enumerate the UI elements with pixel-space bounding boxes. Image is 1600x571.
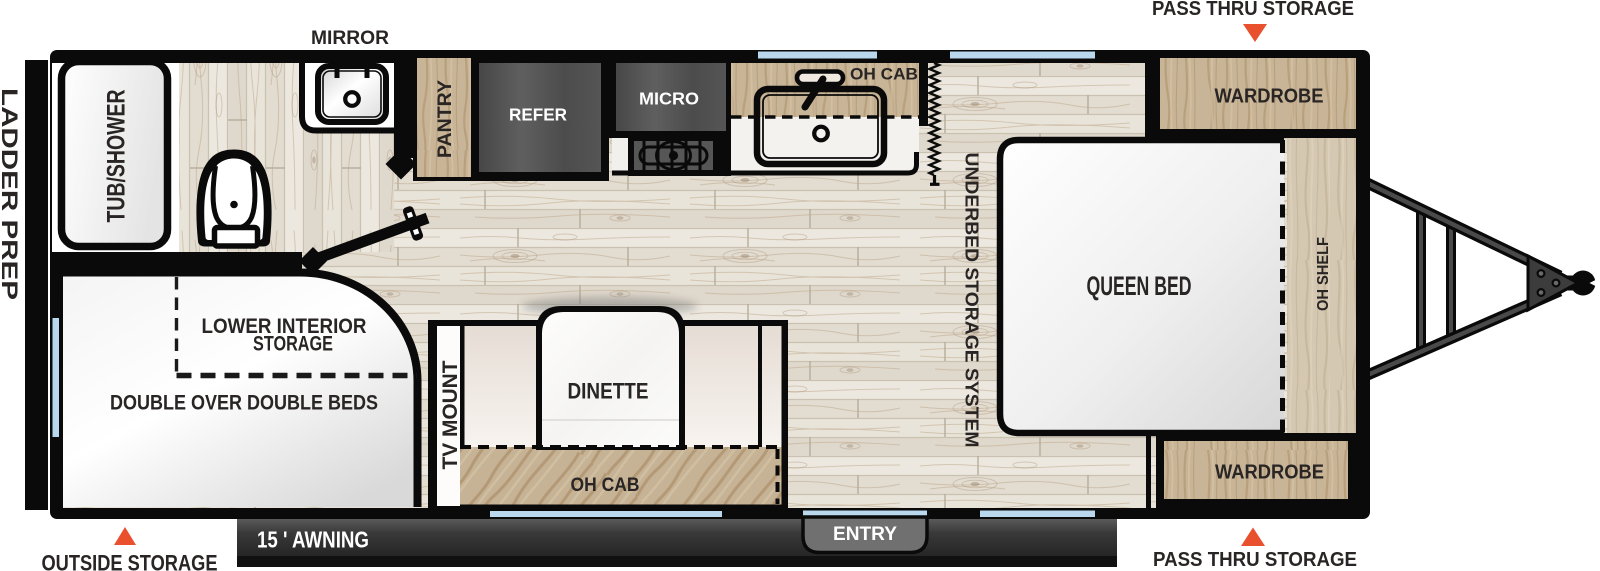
svg-text:STORAGE: STORAGE: [253, 333, 333, 356]
svg-text:OUTSIDE STORAGE: OUTSIDE STORAGE: [42, 551, 218, 571]
svg-text:WARDROBE: WARDROBE: [1215, 86, 1324, 108]
svg-text:TV MOUNT: TV MOUNT: [439, 360, 462, 469]
svg-text:ENTRY: ENTRY: [833, 523, 897, 545]
svg-text:DINETTE: DINETTE: [568, 379, 649, 404]
svg-text:OH CAB: OH CAB: [850, 65, 918, 83]
svg-text:PASS THRU STORAGE: PASS THRU STORAGE: [1152, 0, 1354, 20]
svg-text:QUEEN BED: QUEEN BED: [1087, 271, 1192, 301]
svg-text:15 ' AWNING: 15 ' AWNING: [257, 527, 369, 553]
svg-text:OH CAB: OH CAB: [571, 474, 640, 496]
svg-text:OH SHELF: OH SHELF: [1315, 237, 1332, 311]
svg-text:TUB/SHOWER: TUB/SHOWER: [103, 90, 131, 223]
svg-text:REFER: REFER: [509, 104, 567, 124]
svg-text:PANTRY: PANTRY: [434, 80, 456, 158]
svg-text:UNDERBED STORAGE SYSTEM: UNDERBED STORAGE SYSTEM: [962, 153, 983, 448]
svg-text:PASS THRU STORAGE: PASS THRU STORAGE: [1153, 549, 1357, 571]
svg-text:WARDROBE: WARDROBE: [1215, 462, 1324, 484]
svg-text:MICRO: MICRO: [639, 88, 699, 108]
svg-text:MIRROR: MIRROR: [311, 27, 389, 49]
svg-text:LADDER PREP: LADDER PREP: [0, 88, 22, 300]
svg-text:DOUBLE OVER DOUBLE BEDS: DOUBLE OVER DOUBLE BEDS: [110, 392, 378, 415]
